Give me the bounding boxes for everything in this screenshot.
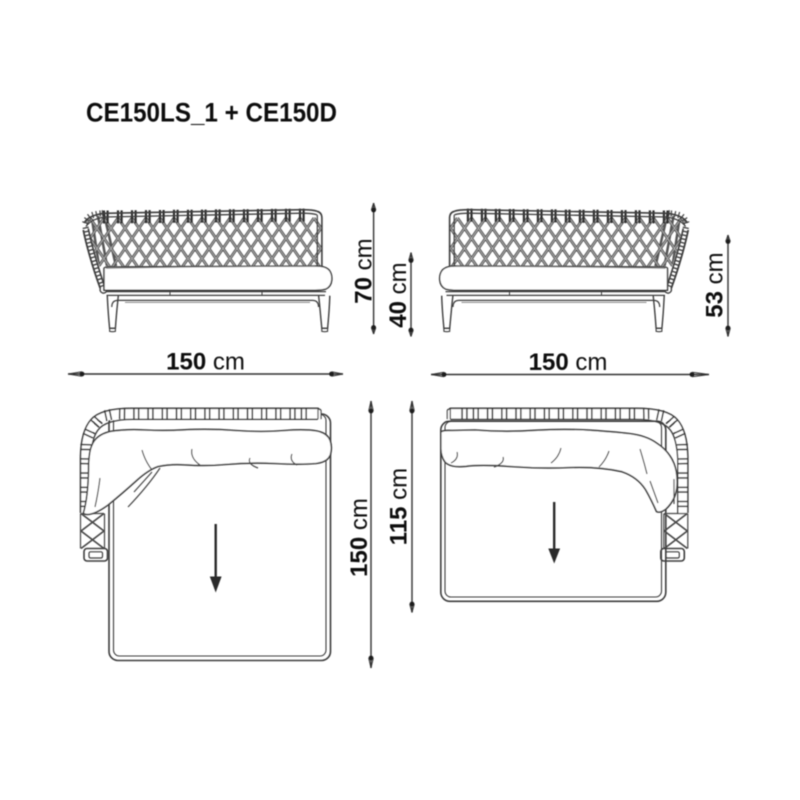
svg-text:150 cm: 150 cm <box>166 349 245 376</box>
svg-text:CE150LS_1 + CE150D: CE150LS_1 + CE150D <box>86 98 337 128</box>
svg-text:150 cm: 150 cm <box>529 349 608 376</box>
svg-text:115 cm: 115 cm <box>386 468 413 545</box>
svg-text:150 cm: 150 cm <box>346 498 373 577</box>
svg-text:70 cm: 70 cm <box>351 238 378 303</box>
svg-text:53 cm: 53 cm <box>702 252 729 317</box>
svg-text:40 cm: 40 cm <box>385 262 412 327</box>
